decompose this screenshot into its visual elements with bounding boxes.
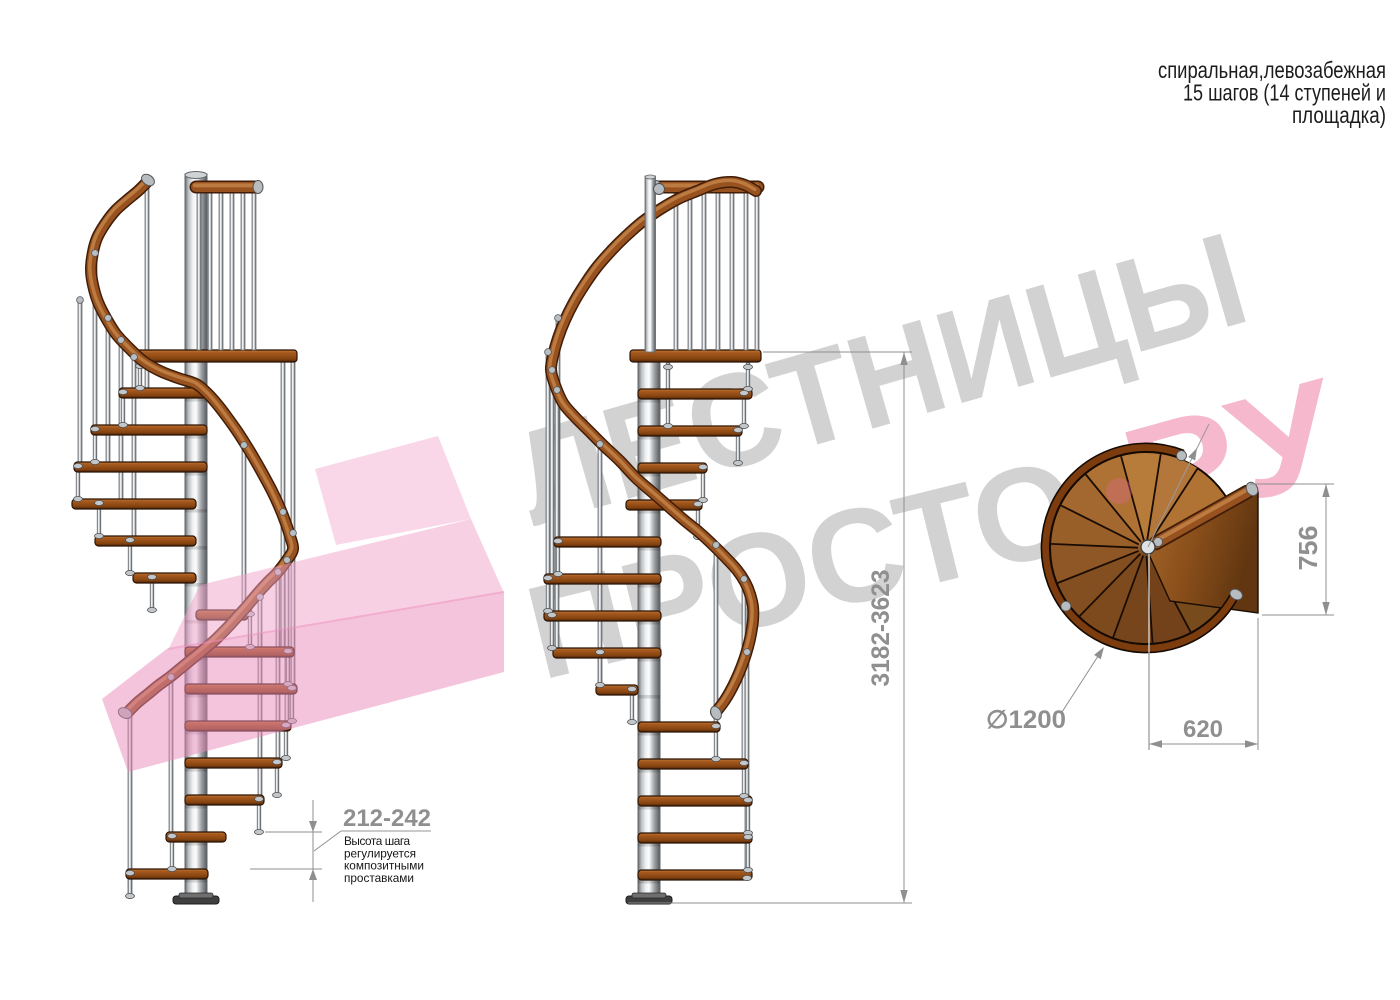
svg-text:212-242: 212-242 [343, 805, 431, 832]
svg-text:620: 620 [1183, 716, 1223, 743]
svg-text:∅1200: ∅1200 [986, 706, 1066, 734]
svg-text:756: 756 [1293, 526, 1323, 571]
svg-text:3182-3623: 3182-3623 [867, 570, 895, 687]
